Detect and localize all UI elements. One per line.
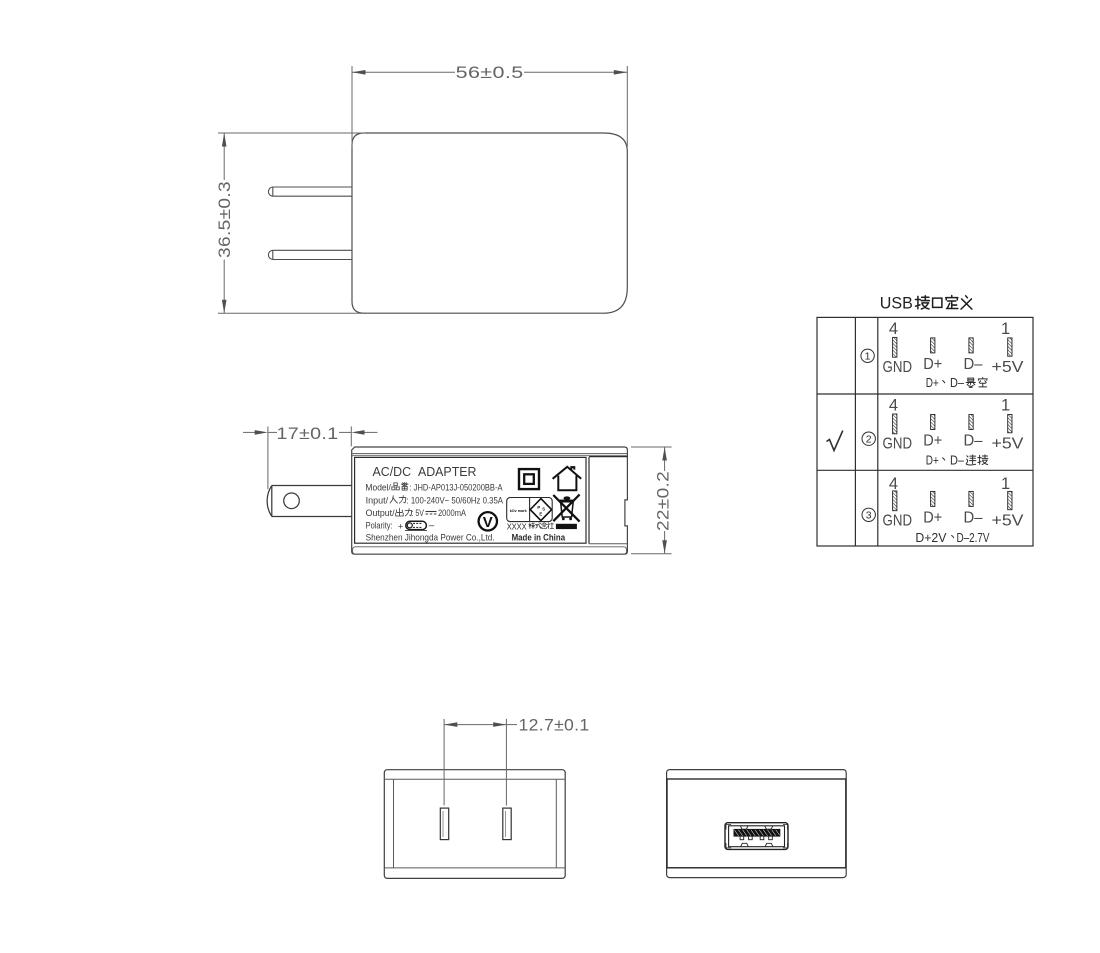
svg-text:1: 1	[865, 351, 871, 363]
svg-text:Made in China: Made in China	[512, 533, 566, 543]
svg-text:2000mA: 2000mA	[438, 508, 466, 518]
svg-text:+5V: +5V	[992, 359, 1024, 376]
svg-text:USB: USB	[880, 294, 913, 313]
svg-text:D+: D+	[923, 433, 942, 450]
svg-text:Model/: Model/	[365, 482, 391, 492]
svg-text:XXXX: XXXX	[507, 522, 527, 531]
svg-text:22±0.2: 22±0.2	[654, 471, 673, 531]
svg-text:D–: D–	[950, 375, 965, 390]
svg-text:kOv mark: kOv mark	[510, 509, 528, 513]
svg-text:–: –	[429, 520, 435, 531]
svg-text:36.5±0.3: 36.5±0.3	[215, 181, 234, 258]
svg-text:+5V: +5V	[992, 512, 1024, 529]
svg-text:3: 3	[866, 510, 872, 522]
svg-text:1: 1	[1001, 320, 1010, 338]
svg-text:2: 2	[866, 434, 872, 446]
svg-text:17±0.1: 17±0.1	[277, 424, 339, 443]
svg-text:GND: GND	[883, 512, 913, 529]
svg-text:Shenzhen Jihongda Power Co.,Lt: Shenzhen Jihongda Power Co.,Ltd.	[366, 531, 495, 542]
svg-text:Input/: Input/	[366, 495, 389, 505]
svg-text:4: 4	[889, 320, 898, 338]
svg-text:D–2.7V: D–2.7V	[957, 530, 990, 545]
svg-text:AC/DC ADAPTER: AC/DC ADAPTER	[373, 465, 477, 479]
svg-text:: 100-240V~ 50/60Hz 0.35A: : 100-240V~ 50/60Hz 0.35A	[407, 495, 504, 505]
svg-text:D+: D+	[926, 452, 939, 467]
svg-text:D+: D+	[926, 375, 939, 390]
svg-text:E: E	[539, 512, 542, 517]
svg-text:D–: D–	[964, 356, 983, 373]
svg-text:: JHD-AP013J-050200BB-A: : JHD-AP013J-050200BB-A	[410, 482, 503, 492]
svg-text:+5V: +5V	[992, 436, 1024, 453]
svg-text:D+2V: D+2V	[915, 530, 946, 545]
svg-text:GND: GND	[883, 359, 913, 376]
svg-text:4: 4	[889, 475, 898, 493]
svg-text:1: 1	[1001, 475, 1010, 493]
svg-text:: 5V: : 5V	[412, 508, 425, 518]
svg-text:12.7±0.1: 12.7±0.1	[519, 716, 590, 735]
svg-text:D+: D+	[923, 356, 942, 373]
svg-text:D–: D–	[964, 433, 983, 450]
svg-text:Polarity:: Polarity:	[366, 520, 393, 530]
svg-text:D–: D–	[964, 510, 983, 527]
svg-text:D+: D+	[923, 510, 942, 527]
svg-text:1: 1	[1001, 397, 1010, 415]
svg-text:S: S	[542, 507, 545, 512]
svg-text:4: 4	[889, 397, 898, 415]
svg-text:D–: D–	[950, 452, 965, 467]
svg-text:56±0.5: 56±0.5	[456, 63, 524, 82]
svg-text:P: P	[537, 505, 540, 510]
svg-text:GND: GND	[883, 436, 913, 453]
svg-text:V: V	[483, 514, 493, 531]
svg-text:Output/: Output/	[366, 508, 396, 518]
